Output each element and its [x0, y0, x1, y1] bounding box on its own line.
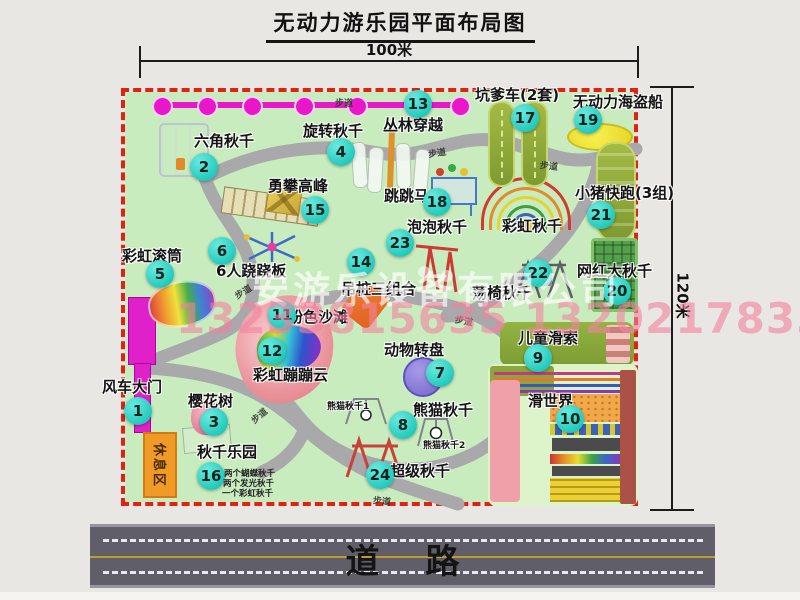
attraction-2-badge: 2 — [190, 153, 218, 181]
right-dim-tick-bottom — [650, 509, 694, 511]
path-label: 步道 — [335, 96, 353, 109]
swing-park-note-3: 一个彩虹秋千 — [222, 487, 273, 499]
attraction-23-label: 泡泡秋千 — [407, 219, 467, 236]
attraction-1-label: 风车大门 — [102, 379, 162, 396]
attraction-20-badge: 20 — [603, 277, 631, 305]
attraction-13-badge: 13 — [404, 90, 432, 118]
attraction-17-label: 坑爹车(2套) — [475, 87, 559, 104]
page-title: 无动力游乐园平面布局图 — [0, 7, 800, 43]
path-label: 步道 — [539, 158, 558, 173]
attraction-12-badge: 12 — [258, 337, 286, 365]
attraction-8-label: 熊猫秋千 — [413, 402, 473, 419]
attraction-16-label: 秋千乐园 — [197, 444, 257, 461]
attraction-4-badge: 4 — [327, 138, 355, 166]
attraction-15-badge: 15 — [301, 196, 329, 224]
attraction-11-label: 粉色沙滩 — [288, 309, 348, 326]
attraction-16-badge: 16 — [197, 462, 225, 490]
attraction-14-label: 吊桩三组合 — [341, 281, 416, 298]
attraction-19-badge: 19 — [574, 106, 602, 134]
panda-swing-1-label: 熊猫秋千1 — [327, 403, 369, 413]
park-layout-screenshot: { "title": "无动力游乐园平面布局图", "dim_width": "… — [0, 0, 800, 600]
attraction-21-label: 小猪快跑(3组) — [575, 185, 674, 202]
attraction-22-label: 荡椅秋千 — [472, 285, 532, 302]
path-label: 步道 — [372, 493, 391, 508]
attraction-24-label: 超级秋千 — [390, 463, 450, 480]
attraction-15-label: 勇攀高峰 — [268, 178, 328, 195]
attraction-8-badge: 8 — [389, 411, 417, 439]
attraction-17-badge: 17 — [511, 104, 539, 132]
path-label: 步道 — [427, 145, 447, 160]
attraction-6-badge: 6 — [208, 237, 236, 265]
attraction-4-label: 旋转秋千 — [303, 123, 363, 140]
attraction-23-badge: 23 — [386, 229, 414, 257]
right-dim-tick-top — [650, 86, 694, 88]
attraction-24-badge: 24 — [366, 461, 394, 489]
attraction-3-label: 樱花树 — [188, 393, 233, 410]
attraction-5-badge: 5 — [146, 260, 174, 288]
attraction-22-badge: 22 — [524, 259, 552, 287]
seesaw-icon — [244, 232, 300, 262]
attraction-1-badge: 1 — [124, 397, 152, 425]
attraction-10-badge: 10 — [556, 405, 584, 433]
attraction-13-label: 丛林穿越 — [383, 117, 443, 134]
attraction-21-badge: 21 — [587, 201, 615, 229]
attraction-9-label: 儿童滑索 — [518, 330, 578, 347]
panda-swing-2-label: 熊猫秋千2 — [423, 442, 465, 452]
top-dimension-line — [140, 60, 638, 62]
attraction-12-label: 彩虹蹦蹦云 — [253, 367, 328, 384]
attraction-18-badge: 18 — [423, 188, 451, 216]
attraction-11-badge: 11 — [268, 301, 296, 329]
attraction-7-label: 动物转盘 — [384, 342, 444, 359]
attraction-14-badge: 14 — [347, 248, 375, 276]
attraction-7-badge: 7 — [426, 359, 454, 387]
attraction-2-label: 六角秋千 — [194, 133, 254, 150]
attraction-6-label: 6人跷跷板 — [216, 263, 286, 280]
bubble-swing-icon — [416, 246, 458, 292]
rainbow-swing-label: 彩虹秋千 — [502, 218, 562, 235]
attraction-9-badge: 9 — [524, 344, 552, 372]
attraction-3-badge: 3 — [200, 408, 228, 436]
height-dimension-label: 120米 — [673, 266, 694, 326]
